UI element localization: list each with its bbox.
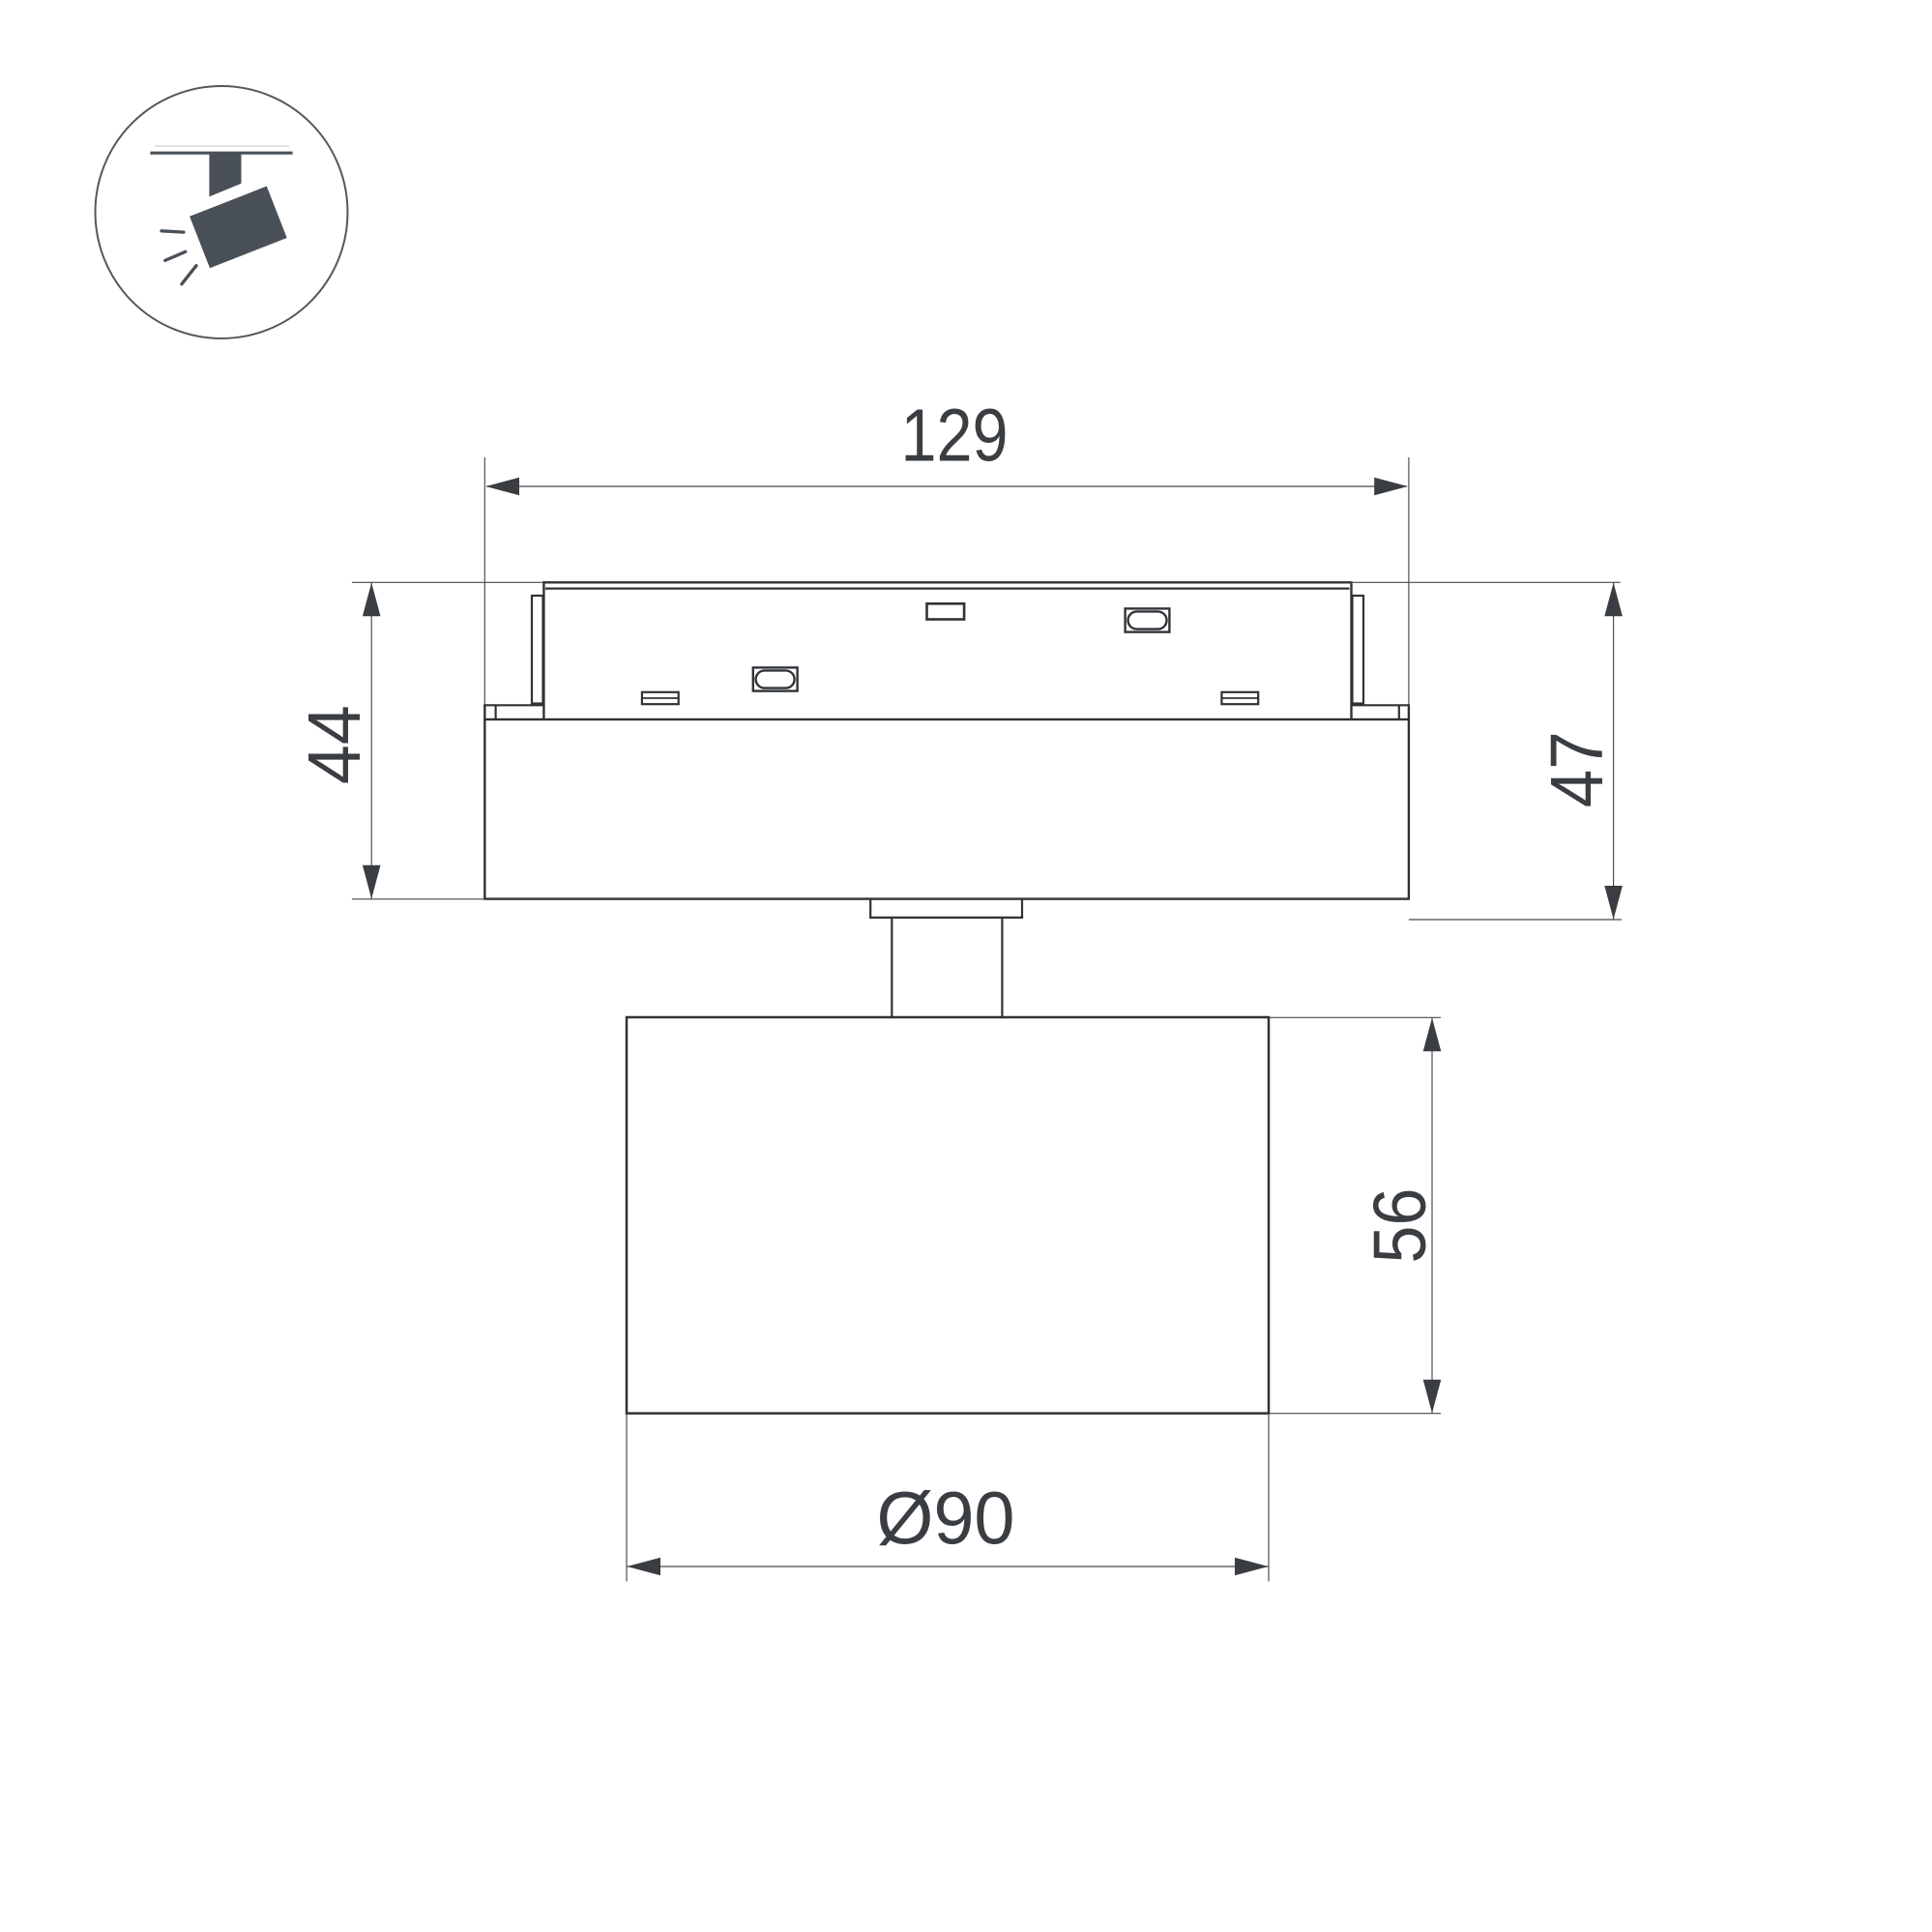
svg-text:Ø90: Ø90 — [877, 1478, 1015, 1561]
svg-text:56: 56 — [1359, 1188, 1442, 1264]
svg-text:44: 44 — [293, 705, 376, 784]
svg-text:129: 129 — [901, 395, 1009, 478]
svg-text:47: 47 — [1536, 731, 1619, 807]
